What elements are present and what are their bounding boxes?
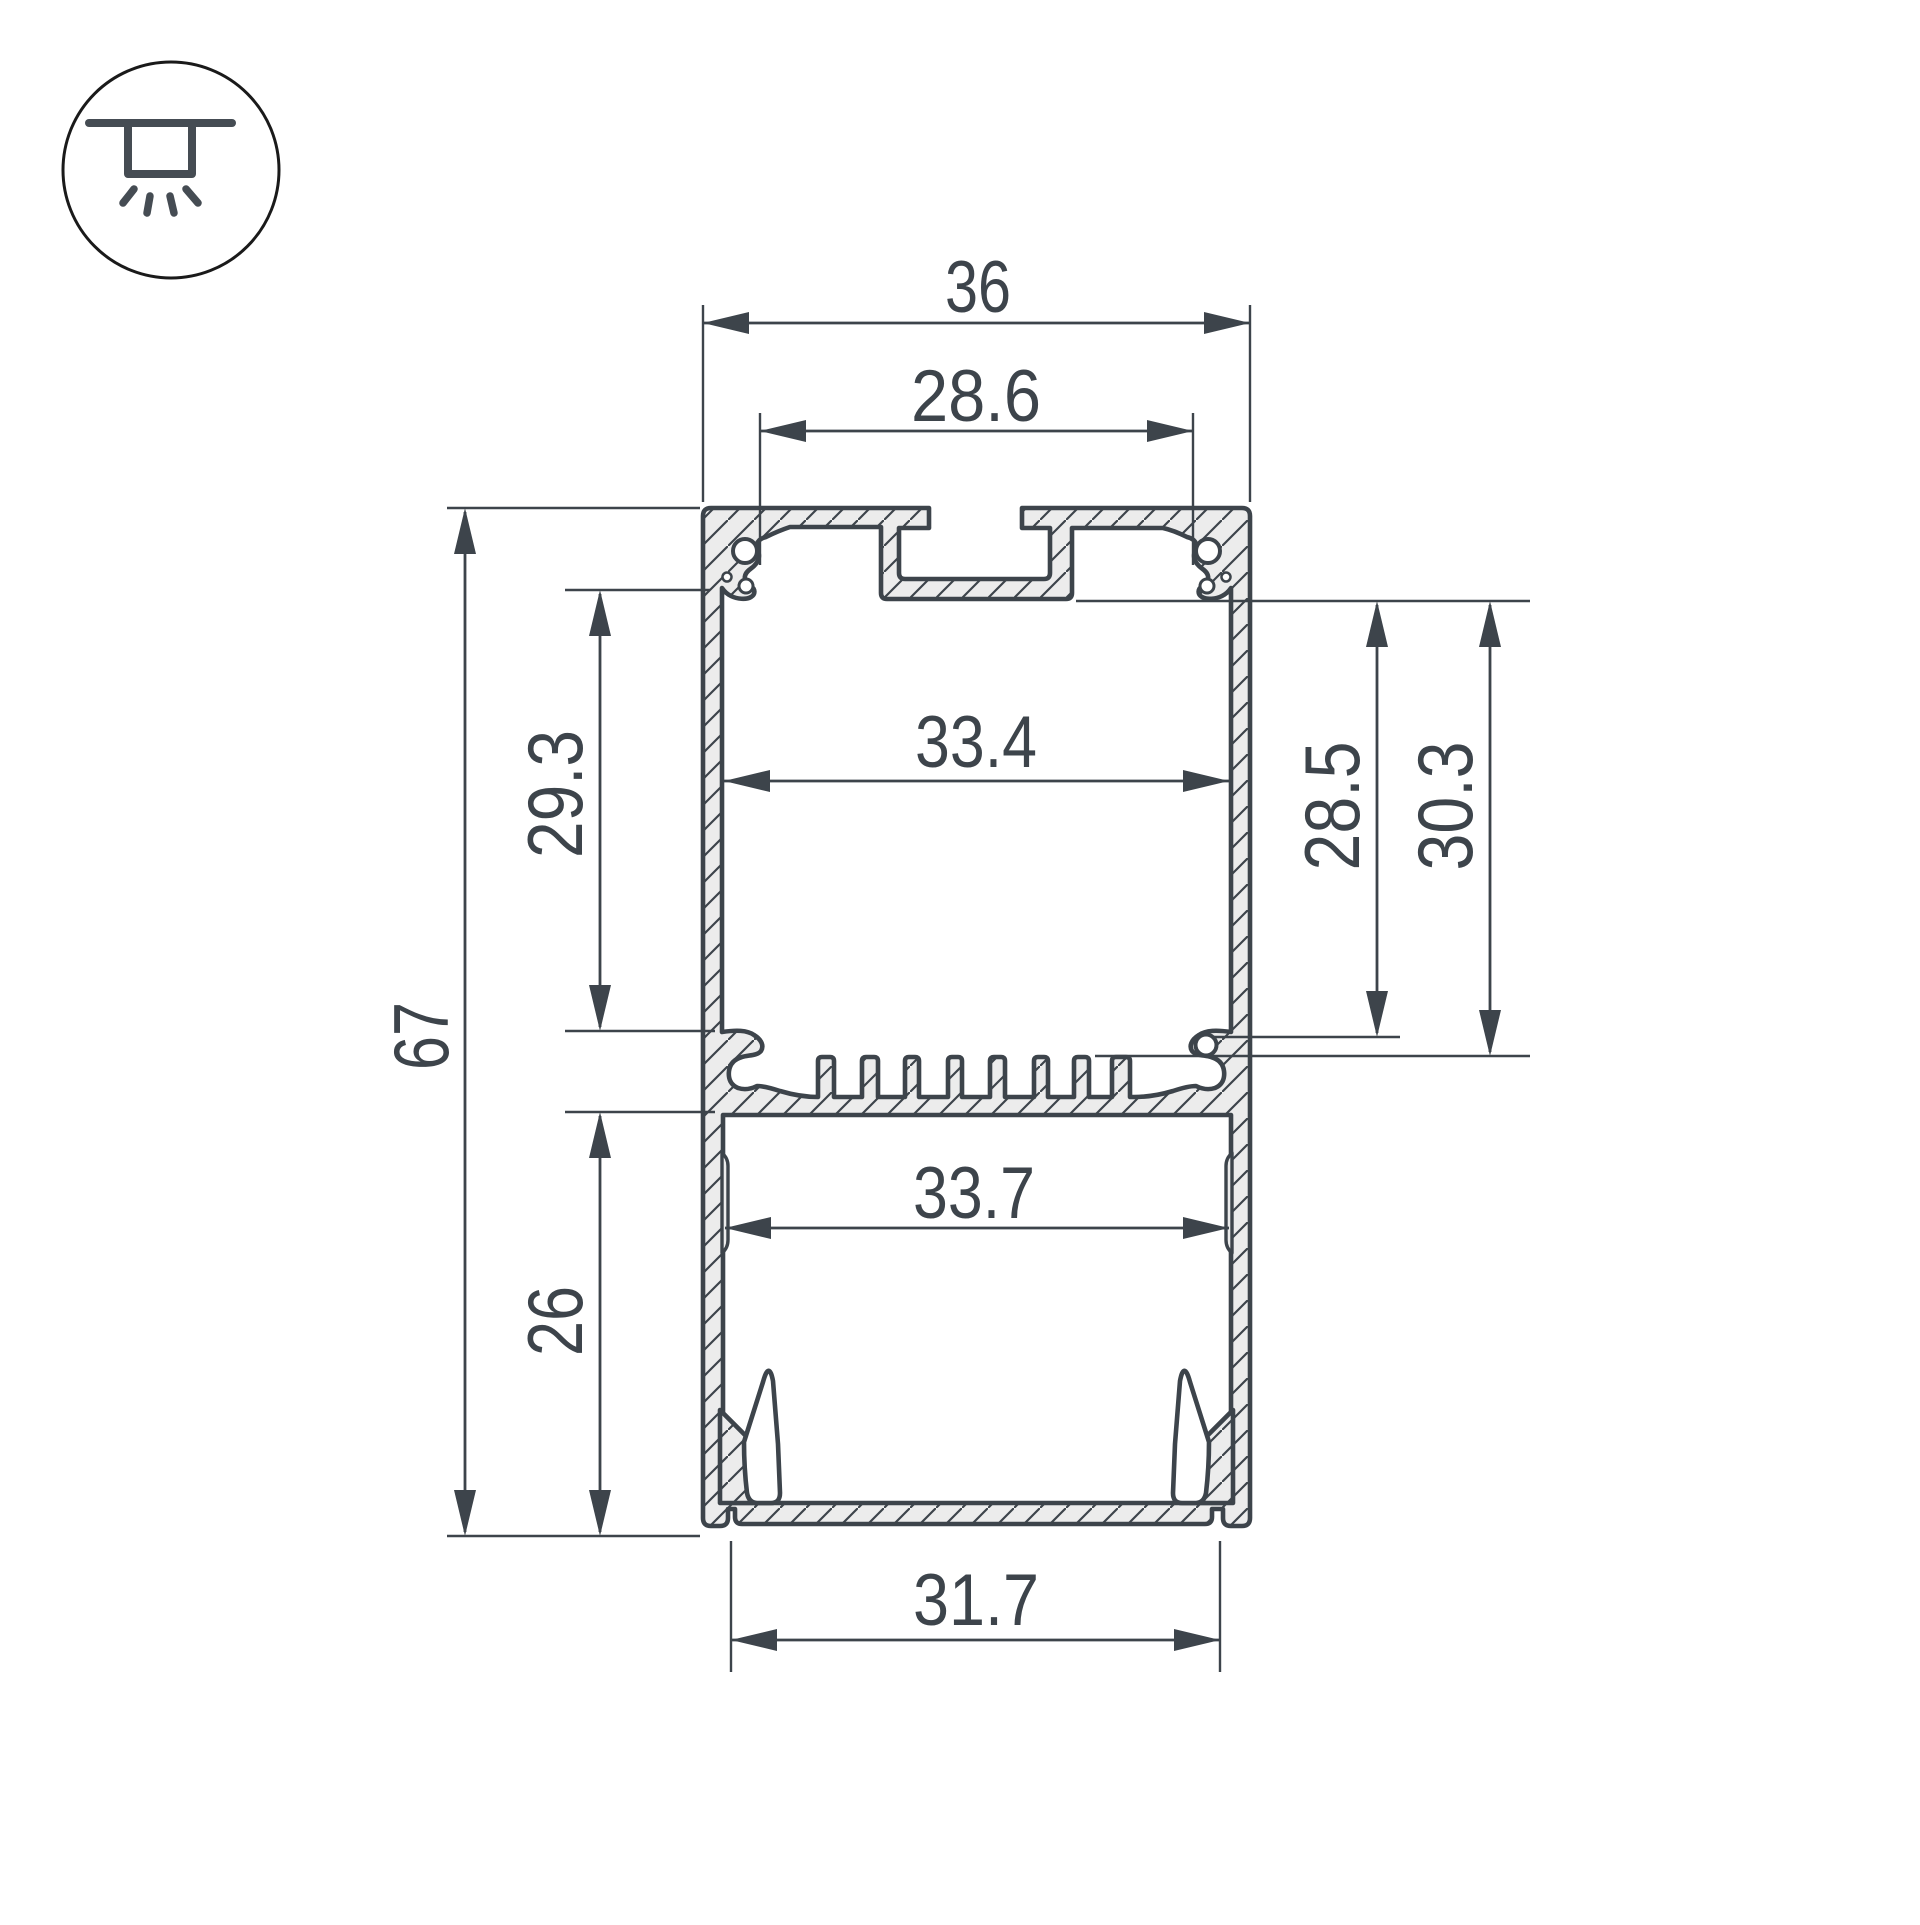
svg-text:33.7: 33.7 (913, 1153, 1035, 1234)
svg-text:29.3: 29.3 (511, 730, 599, 858)
svg-text:26: 26 (511, 1286, 599, 1356)
svg-text:67: 67 (377, 1002, 465, 1070)
svg-text:28.5: 28.5 (1288, 742, 1376, 871)
svg-text:36: 36 (945, 247, 1011, 328)
svg-text:28.6: 28.6 (911, 356, 1041, 437)
svg-text:33.4: 33.4 (915, 702, 1037, 783)
svg-text:31.7: 31.7 (913, 1560, 1039, 1641)
svg-text:30.3: 30.3 (1401, 742, 1489, 871)
